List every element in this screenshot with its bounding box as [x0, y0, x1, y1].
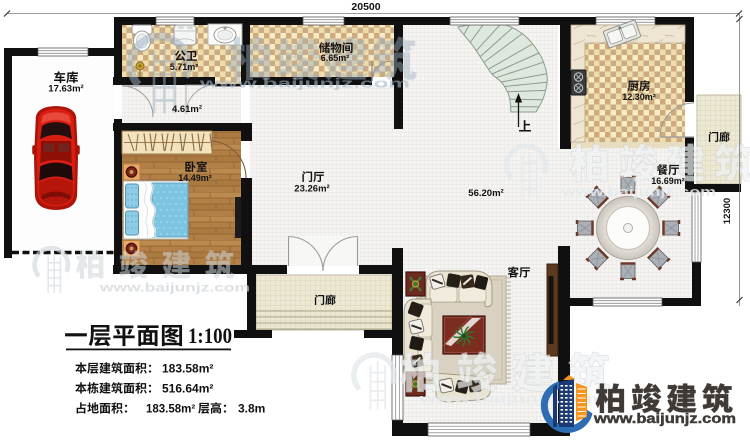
svg-text:16.69m²: 16.69m² [651, 176, 685, 186]
svg-text:183.58m²: 183.58m² [162, 362, 213, 376]
svg-text:14.49m²: 14.49m² [178, 173, 212, 183]
svg-text:4.61m²: 4.61m² [172, 104, 202, 115]
svg-text:56.20m²: 56.20m² [468, 188, 503, 199]
svg-text:www.baijunjz.com: www.baijunjz.com [98, 283, 250, 295]
svg-text:www.baijunjz.com: www.baijunjz.com [593, 411, 736, 426]
svg-text:5.71m²: 5.71m² [170, 62, 199, 72]
svg-text:3.8m: 3.8m [238, 402, 265, 416]
svg-text:20500: 20500 [351, 1, 380, 13]
svg-text:23.26m²: 23.26m² [294, 184, 329, 195]
svg-text:17.63m²: 17.63m² [48, 84, 83, 95]
svg-text:12.30m²: 12.30m² [622, 92, 656, 102]
svg-text:6.65m²: 6.65m² [321, 53, 350, 63]
svg-text:12300: 12300 [722, 198, 733, 224]
svg-text:183.58m²: 183.58m² [146, 404, 195, 416]
svg-text:www.baijunjz.com: www.baijunjz.com [561, 184, 716, 199]
svg-text:www.baijunjz.com: www.baijunjz.com [198, 76, 410, 91]
svg-text:516.64m²: 516.64m² [162, 382, 213, 396]
svg-text:1:100: 1:100 [188, 323, 232, 348]
